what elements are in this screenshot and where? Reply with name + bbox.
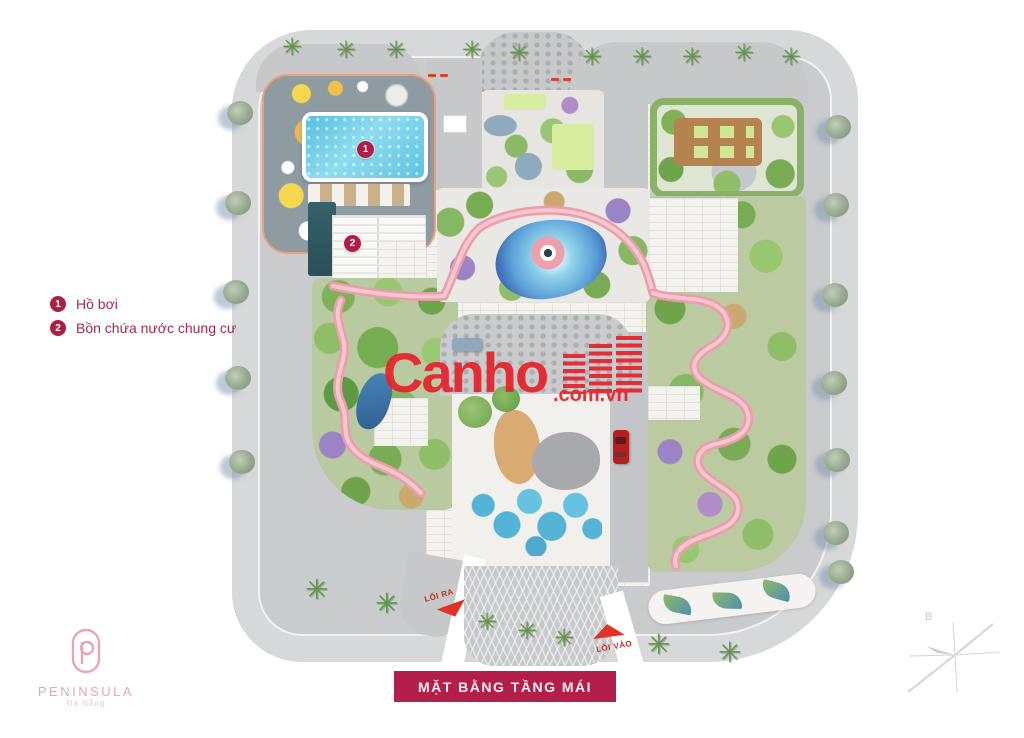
palm-icon: ✳ [582,46,602,70]
logo-name: PENINSULA [30,684,142,699]
roof-patch [648,386,700,420]
car [613,430,629,464]
legend-badge-1: 1 [50,296,66,312]
wooden-deck [674,118,762,166]
car-rear-window [615,452,626,457]
planter-row [682,146,754,158]
palm-icon: ✳ [718,639,741,667]
gate-mark [440,74,448,77]
palm-icon: ✳ [462,39,482,63]
legend-label-pool: Hồ bơi [76,296,118,312]
lawn [504,94,546,110]
palm-icon: ✳ [477,611,497,635]
palm-icon: ✳ [386,39,406,63]
plan-marker-tank: 2 [344,235,361,252]
legend-item-pool: 1 Hồ bơi [50,296,236,312]
leaf-planter [760,579,793,602]
car-windshield [615,437,626,444]
palm-icon: ✳ [682,46,702,70]
gate-mark [428,74,436,77]
tree [828,560,854,584]
developer-logo: PENINSULA Đà Nẵng [30,628,142,716]
roof-patch [648,198,738,292]
legend-label-tank: Bồn chứa nước chung cư [76,320,236,336]
tree [227,101,253,125]
building-icon [616,336,642,394]
palm-icon: ✳ [517,620,537,644]
palm-icon: ✳ [647,631,670,659]
legend-item-tank: 2 Bồn chứa nước chung cư [50,320,236,336]
logo-subtitle: Đà Nẵng [30,699,142,708]
palm-icon: ✳ [375,590,398,618]
palm-icon: ✳ [282,36,302,60]
tree [823,193,849,217]
pool-kiosk [443,115,467,133]
gate-mark [563,78,571,81]
tree [825,115,851,139]
legend: 1 Hồ bơi 2 Bồn chứa nước chung cư [50,296,236,344]
palm-icon: ✳ [632,46,652,70]
palm-icon: ✳ [305,576,328,604]
leaf-planter [712,592,742,609]
plan-marker-pool: 1 [357,141,374,158]
palm-icon: ✳ [509,42,529,66]
plan-title-banner: MẶT BẰNG TẦNG MÁI [394,671,616,702]
roof-plan-page: LỐI RA LỐI VÀO ✳ ✳ ✳ ✳ ✳ ✳ ✳ ✳ ✳ ✳ ✳ ✳ ✳… [0,0,1024,738]
logo-monogram-icon [71,628,101,676]
building-icon [589,344,612,394]
legend-badge-2: 2 [50,320,66,336]
watermark-brand: Canho [383,340,547,405]
splash-feature [531,236,565,270]
roof-patch [378,241,426,279]
tree [821,371,847,395]
building-icon [563,354,585,394]
tree [225,191,251,215]
tree [229,450,255,474]
tree [225,366,251,390]
compass-icon: B [898,600,1010,704]
gate-mark [551,78,559,81]
palm-icon: ✳ [781,46,801,70]
side-block-right [602,86,648,192]
leaf-planter [661,594,694,615]
palm-icon: ✳ [554,627,574,651]
lawn [552,124,594,170]
tree [822,283,848,307]
water-paving [470,478,602,556]
tree [824,448,850,472]
compass-north-text: B [925,611,932,623]
palm-icon: ✳ [734,42,754,66]
planter-row [682,126,754,138]
tree [823,521,849,545]
palm-icon: ✳ [336,39,356,63]
watermark: Canho .com.vn [383,336,649,416]
